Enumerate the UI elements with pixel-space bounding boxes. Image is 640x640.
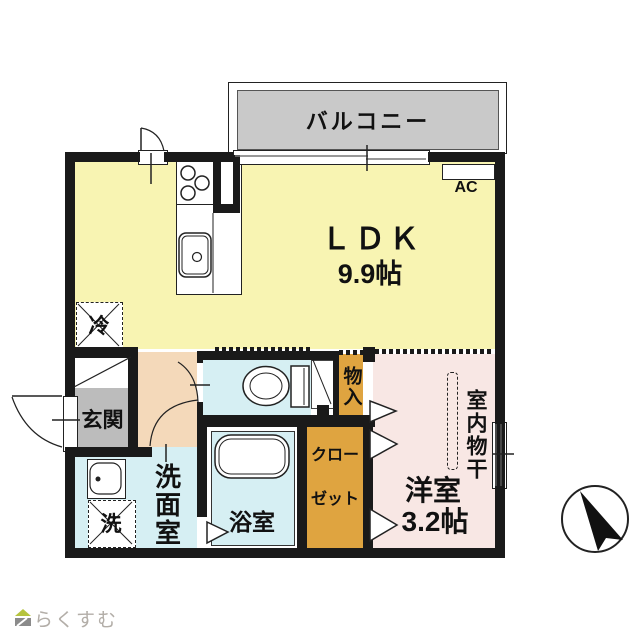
entrance-shoebox <box>73 356 134 390</box>
storage-label: 物入 <box>339 362 363 412</box>
wall <box>363 427 373 549</box>
wall <box>65 548 505 558</box>
wall <box>197 415 375 427</box>
washbasin-counter <box>87 459 126 499</box>
entrance-label: 玄関 <box>74 406 131 432</box>
ldk-label: ＬＤＫ <box>297 218 447 254</box>
fridge-label: 冷 <box>78 312 120 338</box>
wall <box>428 152 505 162</box>
toilet-floor <box>203 358 311 415</box>
floorplan-canvas: バルコニー ＬＤＫ 9.9帖 AC 冷 玄関 洗 洗面室 浴室 物入 クロー ゼ… <box>0 0 640 640</box>
hallway-floor <box>138 352 197 447</box>
closet-label-line1: クロー <box>307 443 363 463</box>
balcony-label: バルコニー <box>258 106 478 134</box>
wall <box>297 427 307 549</box>
wall <box>317 405 329 417</box>
ac-label: AC <box>440 179 492 197</box>
wall <box>363 347 375 362</box>
wall <box>495 152 505 558</box>
wall <box>197 352 203 363</box>
balcony-window <box>233 150 430 165</box>
closet-label-line2: ゼット <box>307 487 363 507</box>
kitchen-stove-box <box>176 160 215 205</box>
wall <box>65 152 75 397</box>
wall <box>197 415 207 517</box>
kitchen-duct-slot <box>221 162 233 204</box>
wall <box>128 352 138 457</box>
bath-label: 浴室 <box>212 506 292 534</box>
wall <box>65 152 140 162</box>
indoor-drying-pole <box>447 372 458 470</box>
indoor-drying-label: 室内物干 <box>461 376 489 494</box>
ldk-size-label: 9.9帖 <box>300 255 440 287</box>
opening-hatch <box>375 349 493 354</box>
wall <box>65 447 152 457</box>
washroom-label: 洗面室 <box>152 460 182 550</box>
ac-unit-box <box>442 164 495 180</box>
logo-text: らくすむ <box>34 606 124 630</box>
wall <box>65 450 75 558</box>
washer-label: 洗 <box>89 510 133 536</box>
logo-house-icon <box>13 607 33 627</box>
opening-hatch <box>215 347 313 352</box>
wall <box>197 351 333 360</box>
opening-hatch <box>339 350 363 355</box>
western-room-size-label: 3.2帖 <box>390 504 480 536</box>
toilet-door-niche <box>311 360 335 409</box>
